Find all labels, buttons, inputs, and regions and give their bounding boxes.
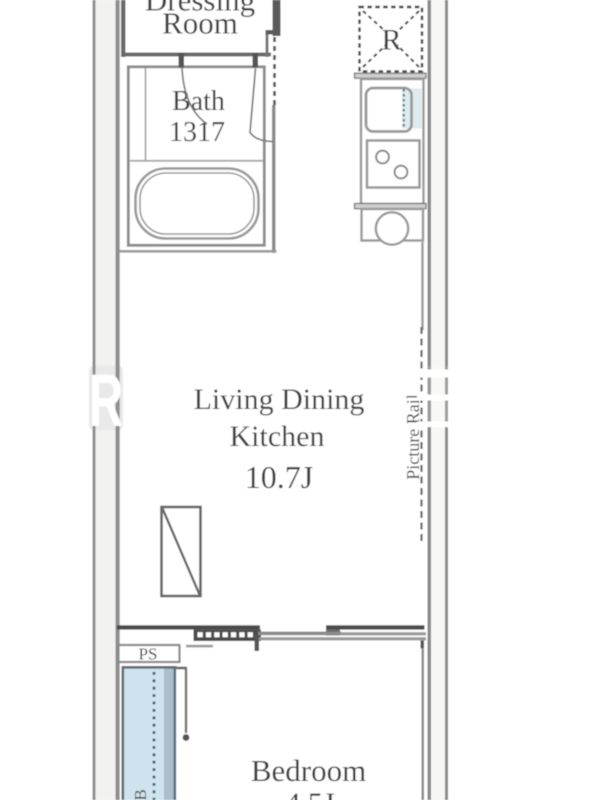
svg-text:R: R xyxy=(89,359,123,442)
svg-text:Bedroom: Bedroom xyxy=(251,753,366,788)
svg-text:R: R xyxy=(381,24,401,57)
svg-text:1317: 1317 xyxy=(169,117,225,148)
svg-text:10.7J: 10.7J xyxy=(245,459,313,495)
svg-text:Living Dining: Living Dining xyxy=(194,383,365,416)
svg-text:4.5J: 4.5J xyxy=(285,787,335,800)
svg-text:B: B xyxy=(131,789,150,800)
svg-text:Kitchen: Kitchen xyxy=(230,420,325,453)
svg-text:Room: Room xyxy=(162,6,238,41)
svg-text:Bath: Bath xyxy=(172,86,225,117)
svg-text:PS: PS xyxy=(139,645,158,664)
svg-text:Picture Rail: Picture Rail xyxy=(403,394,423,479)
